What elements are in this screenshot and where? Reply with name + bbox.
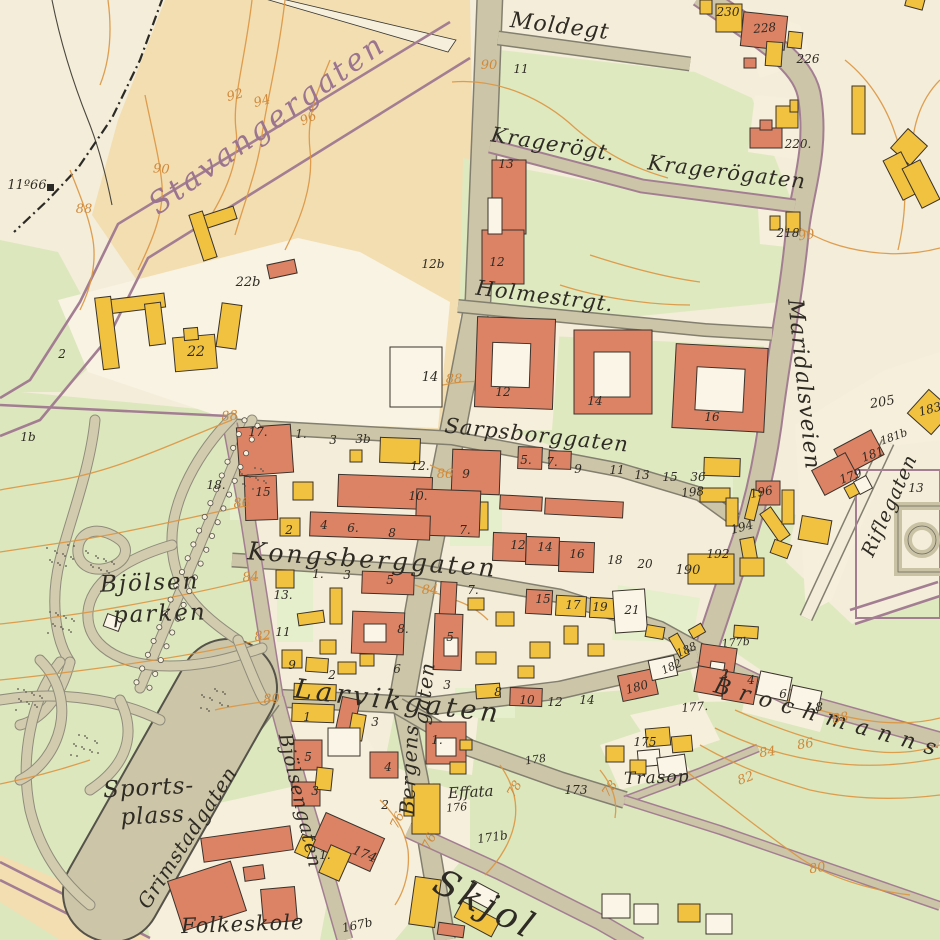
stipple-dot (216, 690, 218, 692)
parcel-number: 9 (462, 467, 470, 481)
stipple-dot (85, 550, 87, 552)
building-red (744, 58, 756, 68)
parcel-number: 22 (186, 344, 205, 360)
stipple-dot (206, 708, 208, 710)
stipple-dot (211, 699, 213, 701)
parcel-number: 3b (355, 432, 370, 446)
parcel-number: 20 (636, 557, 653, 571)
stipple-dot (18, 698, 20, 700)
building-yellow (338, 662, 356, 674)
stipple-dot (244, 485, 246, 487)
parcel-number: 18 (607, 553, 623, 567)
building-yellow (276, 570, 294, 588)
stipple-dot (76, 755, 78, 757)
parcel-number: 14 (587, 394, 602, 408)
stipple-dot (57, 562, 59, 564)
parcel-number: 12 (510, 538, 525, 552)
tree-icon (242, 418, 247, 423)
stipple-dot (71, 618, 73, 620)
parcel-number: 14 (579, 693, 594, 707)
building-yellow (306, 657, 329, 673)
stipple-dot (70, 631, 72, 633)
parcel-number: 5. (520, 453, 531, 467)
stipple-dot (242, 483, 244, 485)
stipple-dot (55, 612, 57, 614)
building-red (545, 498, 624, 518)
tree-icon (204, 547, 209, 552)
building-yellow (460, 740, 472, 750)
building-yellow (740, 558, 764, 576)
stipple-dot (81, 746, 83, 748)
stipple-dot (91, 751, 93, 753)
parcel-number: 1. (312, 567, 323, 581)
stipple-dot (26, 701, 28, 703)
stipple-dot (260, 468, 262, 470)
parcel-number: 230 (716, 5, 740, 19)
building-yellow (787, 31, 803, 48)
stipple-dot (25, 691, 27, 693)
parcel-number: 173 (565, 783, 588, 797)
stipple-dot (49, 611, 51, 613)
tree-icon (140, 666, 145, 671)
contour-label: 86 (796, 736, 815, 754)
building-yellow (530, 642, 550, 658)
survey-marker (47, 184, 54, 191)
stipple-dot (90, 564, 92, 566)
tree-icon (236, 432, 241, 437)
parcel-number: 12b (422, 257, 445, 271)
building-yellow (700, 0, 712, 14)
stipple-dot (94, 740, 96, 742)
parcel-number: 2 (380, 798, 389, 812)
stipple-dot (67, 544, 69, 546)
parcel-number: 220. (784, 137, 812, 151)
stipple-dot (54, 550, 56, 552)
stipple-dot (208, 710, 210, 712)
stipple-dot (87, 552, 89, 554)
parcel-number: 14 (422, 370, 439, 385)
parcel-number: 10. (408, 489, 427, 503)
parcel-number: 198 (681, 484, 705, 500)
place-label-parken: parken (112, 599, 207, 628)
tree-icon (231, 445, 236, 450)
tree-icon (185, 556, 190, 561)
parcel-number: 226 (796, 52, 820, 66)
tree-icon (232, 478, 237, 483)
parcel-number: 11 (609, 463, 624, 477)
stipple-dot (54, 625, 56, 627)
contour-label: 86 (437, 467, 454, 482)
stipple-dot (100, 569, 102, 571)
parcel-number: 17. (248, 425, 267, 439)
parcel-number: 8. (397, 622, 408, 636)
parcel-number: 13 (908, 481, 924, 495)
parcel-number: 12 (495, 385, 510, 399)
parcel-number: 11 (513, 62, 528, 76)
contour-label: 86 (233, 495, 251, 511)
building-yellow (606, 746, 624, 762)
stipple-dot (252, 488, 254, 490)
tree-icon (227, 492, 232, 497)
parcel-number: 5 (446, 630, 454, 644)
parcel-number: 2 (327, 668, 336, 682)
building-red (243, 865, 265, 882)
contour-label: 90 (797, 227, 816, 245)
stipple-dot (59, 564, 61, 566)
parcel-number: 177b (721, 635, 750, 650)
parcel-number: 176 (446, 800, 468, 815)
stipple-dot (39, 695, 41, 697)
building-red (451, 449, 501, 495)
stipple-dot (60, 626, 62, 628)
stipple-dot (41, 697, 43, 699)
parcel-number: 6 (393, 662, 401, 676)
stipple-dot (105, 560, 107, 562)
building-yellow (450, 762, 466, 774)
parcel-number: 10 (519, 693, 535, 707)
building-yellow (330, 588, 342, 624)
building-outline (594, 352, 630, 397)
stipple-dot (209, 697, 211, 699)
parcel-number: 15 (662, 470, 677, 484)
stipple-dot (70, 556, 72, 558)
building-outline (328, 728, 360, 756)
parcel-number: 13. (273, 588, 292, 602)
stipple-dot (57, 614, 59, 616)
parcel-number: 2 (720, 667, 729, 681)
parcel-number: 16 (569, 547, 585, 561)
tree-icon (221, 506, 226, 511)
parcel-number: 3 (329, 433, 337, 447)
building-outline (491, 342, 531, 387)
parcel-number: 190 (676, 563, 701, 578)
parcel-number: 1b (20, 430, 35, 444)
tree-icon (153, 671, 158, 676)
contour-label: 84 (242, 569, 260, 585)
stipple-dot (63, 615, 65, 617)
stipple-dot (103, 558, 105, 560)
parcel-number: 1. (295, 427, 306, 441)
stipple-dot (65, 565, 67, 567)
parcel-number: 192 (707, 547, 730, 561)
parcel-number: 8 (494, 685, 502, 699)
stipple-dot (73, 743, 75, 745)
stipple-dot (64, 555, 66, 557)
tree-icon (198, 561, 203, 566)
stipple-dot (247, 474, 249, 476)
stipple-dot (51, 561, 53, 563)
map-image: StavangergatenMoldegtKragerögt.Krageröga… (0, 0, 940, 940)
building-yellow (588, 644, 604, 656)
parcel-number: 4 (319, 518, 328, 532)
stipple-dot (97, 752, 99, 754)
parcel-number: 15 (535, 592, 550, 606)
parcel-number: 19 (592, 600, 608, 614)
stipple-dot (249, 476, 251, 478)
parcel-number: 11 (275, 625, 290, 639)
stipple-dot (221, 704, 223, 706)
building-yellow (184, 327, 199, 340)
tree-icon (209, 533, 214, 538)
contour-label: 84 (422, 583, 439, 598)
stipple-dot (65, 617, 67, 619)
tree-icon (215, 520, 220, 525)
tree-icon (238, 464, 243, 469)
stipple-dot (239, 471, 241, 473)
parcel-number: 2 (57, 347, 66, 361)
stipple-dot (222, 691, 224, 693)
building-yellow (645, 625, 665, 640)
building-yellow (476, 652, 496, 664)
contour-label: 82 (254, 628, 272, 644)
parcel-number: 12 (547, 695, 562, 709)
contour-label: 88 (831, 710, 850, 728)
tree-icon (208, 501, 213, 506)
stipple-dot (46, 547, 48, 549)
stipple-dot (95, 555, 97, 557)
stipple-dot (75, 745, 77, 747)
parcel-number: 11º66 (7, 178, 46, 193)
parcel-number: 21 (623, 603, 639, 617)
tree-icon (244, 451, 249, 456)
building-yellow (320, 640, 336, 654)
building-yellow (360, 654, 374, 666)
building-red (750, 128, 782, 148)
tree-icon (202, 514, 207, 519)
parcel-number: 177. (681, 699, 709, 715)
stipple-dot (56, 552, 58, 554)
stipple-dot (224, 693, 226, 695)
tree-icon (197, 528, 202, 533)
building-yellow (293, 482, 313, 500)
stipple-dot (227, 705, 229, 707)
stipple-dot (73, 545, 75, 547)
contour-label: 80 (263, 691, 281, 707)
parcel-number: 12 (489, 255, 504, 269)
tree-icon (145, 652, 150, 657)
contour-label: 90 (481, 58, 498, 73)
contour-label: 88 (221, 408, 239, 424)
tree-icon (151, 638, 156, 643)
parcel-number: 4 (383, 760, 392, 774)
parcel-number: 18. (206, 478, 225, 492)
tree-icon (191, 542, 196, 547)
stipple-dot (31, 692, 33, 694)
stipple-dot (203, 696, 205, 698)
parcel-number: 7. (467, 583, 478, 597)
parcel-number: 3 (371, 715, 379, 729)
parcel-number: 228 (752, 20, 777, 36)
stipple-dot (72, 558, 74, 560)
parcel-number: 175 (634, 735, 657, 749)
place-label-sports: Sports- (102, 773, 194, 804)
building-yellow (671, 735, 692, 753)
place-label-trasop: Trasop (624, 767, 690, 789)
stipple-dot (262, 470, 264, 472)
stipple-dot (83, 748, 85, 750)
place-label-folkeskole: Folkeskole (180, 910, 305, 938)
parcel-number: 6 (779, 687, 787, 701)
building-red (500, 495, 543, 511)
stipple-dot (263, 480, 265, 482)
parcel-number: 16 (704, 410, 720, 424)
stipple-dot (15, 709, 17, 711)
building-yellow (564, 626, 578, 644)
stipple-dot (111, 561, 113, 563)
parcel-number: 1. (431, 733, 442, 747)
stipple-dot (98, 567, 100, 569)
parcel-number: 6. (347, 521, 358, 535)
stipple-dot (36, 706, 38, 708)
stipple-dot (52, 623, 54, 625)
stipple-dot (200, 707, 202, 709)
contour-label: 84 (758, 744, 776, 761)
parcel-number: 36 (690, 470, 706, 484)
stipple-dot (97, 557, 99, 559)
stipple-dot (78, 734, 80, 736)
tree-icon (147, 685, 152, 690)
parcel-number: 8 (815, 700, 823, 714)
building-yellow (468, 598, 484, 610)
building-yellow (852, 86, 865, 134)
parcel-number: 218 (776, 226, 800, 240)
place-label-effata: Effata (447, 782, 494, 802)
stipple-dot (20, 700, 22, 702)
parcel-number: 3 (443, 678, 451, 692)
building-outline (706, 914, 732, 934)
stipple-dot (17, 688, 19, 690)
building-yellow (678, 904, 700, 922)
parcel-number: 5 (304, 750, 312, 764)
stipple-dot (92, 566, 94, 568)
building-yellow (496, 612, 514, 626)
parcel-number: 4 (746, 673, 755, 687)
stipple-dot (219, 702, 221, 704)
parcel-number: 9 (288, 658, 296, 672)
stipple-dot (89, 749, 91, 751)
parcel-number: 7. (546, 455, 557, 469)
building-yellow (350, 450, 362, 462)
parcel-number: 9 (574, 462, 582, 476)
stipple-dot (47, 632, 49, 634)
stipple-dot (62, 628, 64, 630)
contour-label: 90 (152, 161, 170, 177)
building-outline (364, 624, 386, 642)
stipple-dot (28, 703, 30, 705)
stipple-dot (257, 479, 259, 481)
parcel-number: 3 (343, 568, 351, 582)
building-outline (695, 367, 745, 412)
street-label-bergens: Bergens (395, 724, 424, 817)
tree-icon (164, 644, 169, 649)
parcel-number: 2 (284, 523, 293, 537)
building-yellow (798, 516, 832, 545)
building-yellow (518, 666, 534, 678)
tree-icon (225, 459, 230, 464)
stipple-dot (254, 467, 256, 469)
stipple-dot (68, 629, 70, 631)
building-yellow (790, 100, 798, 112)
stipple-dot (73, 620, 75, 622)
building-outline (488, 198, 502, 234)
stipple-dot (49, 559, 51, 561)
parcel-number: 5 (386, 573, 394, 587)
building-yellow (765, 41, 783, 66)
stipple-dot (70, 754, 72, 756)
parcel-number: 7. (459, 523, 470, 537)
parcel-number: 17 (565, 598, 581, 612)
stipple-dot (84, 735, 86, 737)
stipple-dot (96, 742, 98, 744)
stipple-dot (23, 689, 25, 691)
parcel-number: 12. (410, 459, 429, 473)
parcel-number: 13 (498, 157, 514, 171)
place-label-plass: plass (120, 801, 186, 830)
stipple-dot (33, 694, 35, 696)
parcel-number: 13 (634, 468, 650, 482)
contour-label: 80 (808, 860, 827, 878)
parcel-number: 8 (388, 526, 396, 540)
stipple-dot (113, 563, 115, 565)
place-label-bjlsen: Bjölsen (99, 568, 200, 597)
stipple-dot (265, 482, 267, 484)
parcel-number: 22b (235, 275, 261, 290)
stipple-dot (214, 688, 216, 690)
stipple-dot (201, 694, 203, 696)
contour-label: 88 (76, 202, 93, 217)
stipple-dot (255, 477, 257, 479)
parcel-number: 15 (255, 485, 270, 499)
parcel-number: 1 (303, 710, 311, 724)
stipple-dot (241, 473, 243, 475)
map-viewport: StavangergatenMoldegtKragerögt.Krageröga… (0, 0, 940, 940)
parcel-number: 3 (311, 784, 319, 798)
parcel-number: 14 (537, 540, 552, 554)
building-outline (602, 894, 630, 918)
stipple-dot (86, 737, 88, 739)
building-yellow (704, 457, 741, 476)
building-outline (634, 904, 658, 924)
tree-icon (134, 680, 139, 685)
stipple-dot (62, 553, 64, 555)
stipple-dot (34, 704, 36, 706)
building-yellow (782, 490, 794, 524)
tree-icon (170, 630, 175, 635)
tree-icon (158, 658, 163, 663)
contour-label: 88 (446, 372, 463, 387)
building-red (760, 120, 772, 130)
parcel-number: 1. (319, 848, 330, 862)
